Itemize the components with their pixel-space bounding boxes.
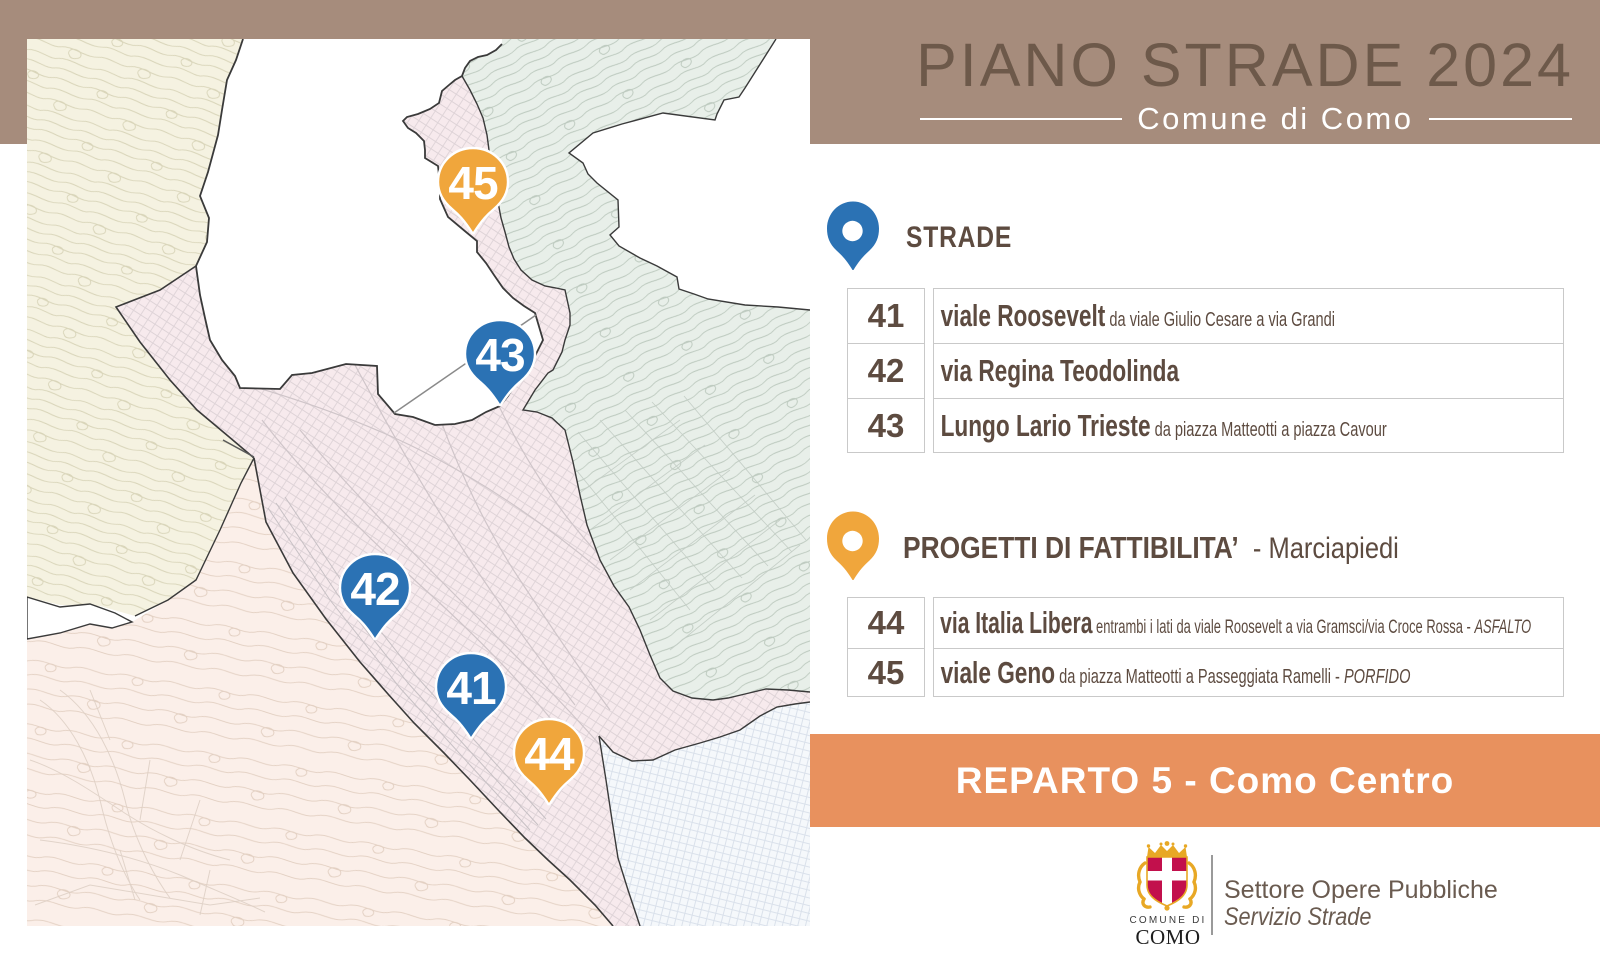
svg-text:43: 43: [475, 329, 524, 381]
svg-text:44: 44: [524, 728, 575, 780]
svg-text:41: 41: [446, 662, 496, 714]
svg-text:42: 42: [350, 563, 399, 615]
svg-text:45: 45: [448, 157, 498, 209]
